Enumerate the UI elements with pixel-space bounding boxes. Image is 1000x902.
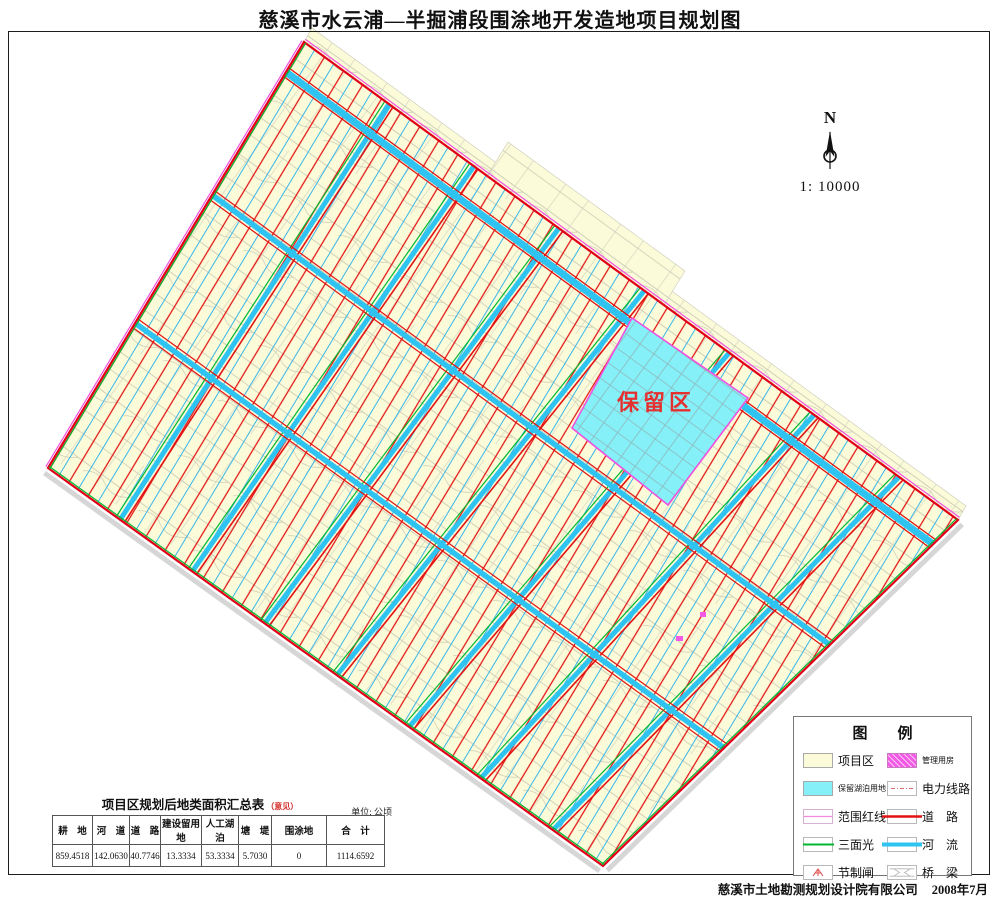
legend-row: 范围红线 道 路 xyxy=(794,802,971,830)
boundary-red-line-icon xyxy=(804,810,832,823)
table-value-row: 859.4518 142.0630 40.7746 13.3334 53.333… xyxy=(53,845,385,867)
area-value: 142.0630 xyxy=(93,845,130,867)
road-icon xyxy=(884,810,920,823)
river-swatch xyxy=(887,837,917,852)
north-arrow-icon xyxy=(813,128,847,172)
area-summary-table: 耕 地 河 道 道 路 建设留用地 人工湖泊 塘 堤 围涂地 合 计 859.4… xyxy=(52,815,385,867)
bridge-swatch xyxy=(887,865,917,880)
control-gate-swatch xyxy=(803,865,833,880)
area-value: 40.7746 xyxy=(130,845,161,867)
legend-row: 项目区 管理用房 xyxy=(794,746,971,774)
col-header: 河 道 xyxy=(93,816,130,845)
col-header: 塘 堤 xyxy=(239,816,272,845)
reserved-lake-swatch xyxy=(803,781,833,796)
legend-item-bridge: 桥 梁 xyxy=(887,864,967,881)
legend-title: 图 例 xyxy=(794,722,971,743)
area-table-title-note: （意见） xyxy=(266,802,298,811)
project-area-swatch xyxy=(803,753,833,768)
legend-item-project-area: 项目区 xyxy=(803,752,887,769)
area-table-title: 项目区规划后地类面积汇总表（意见） xyxy=(60,794,340,813)
power-line-icon xyxy=(888,782,916,795)
legend-row: 节制闸 桥 梁 xyxy=(794,858,971,886)
legend-row: 三面光 河 流 xyxy=(794,830,971,858)
management-housing-swatch xyxy=(887,753,917,768)
col-header: 耕 地 xyxy=(53,816,93,845)
legend-item-road: 道 路 xyxy=(887,808,967,825)
road-swatch xyxy=(887,809,917,824)
lined-channel-icon xyxy=(804,838,832,851)
col-header: 人工湖泊 xyxy=(202,816,239,845)
legend-item-reserved-lake: 保留湖泊用地 xyxy=(803,781,887,796)
col-header: 围涂地 xyxy=(272,816,327,845)
area-value: 1114.6592 xyxy=(327,845,385,867)
legend-rows: 项目区 管理用房 保留湖泊用地 xyxy=(794,746,971,886)
col-header: 建设留用地 xyxy=(161,816,202,845)
lined-channel-swatch xyxy=(803,837,833,852)
boundary-red-line-swatch xyxy=(803,809,833,824)
legend-item-management-housing: 管理用房 xyxy=(887,753,967,768)
bridge-icon xyxy=(888,865,916,880)
area-value: 859.4518 xyxy=(53,845,93,867)
col-header: 合 计 xyxy=(327,816,385,845)
compass: N 1: 10000 xyxy=(796,108,864,196)
control-gate-icon xyxy=(805,866,831,879)
legend-item-power-line: 电力线路 xyxy=(887,780,967,797)
legend-row: 保留湖泊用地 电力线路 xyxy=(794,774,971,802)
power-line-swatch xyxy=(887,781,917,796)
scale-label: 1: 10000 xyxy=(796,179,864,196)
legend-item-river: 河 流 xyxy=(887,836,967,853)
area-value: 0 xyxy=(272,845,327,867)
area-value: 13.3334 xyxy=(161,845,202,867)
col-header: 道 路 xyxy=(130,816,161,845)
river-icon xyxy=(884,838,920,851)
legend-item-lined-channel: 三面光 xyxy=(803,836,887,853)
legend-item-control-gate: 节制闸 xyxy=(803,864,887,881)
planning-map-sheet: 慈溪市水云浦—半掘浦段围涂地开发造地项目规划图 xyxy=(0,0,1000,902)
table-header-row: 耕 地 河 道 道 路 建设留用地 人工湖泊 塘 堤 围涂地 合 计 xyxy=(53,816,385,845)
legend-item-boundary-red-line: 范围红线 xyxy=(803,808,887,825)
area-value: 53.3334 xyxy=(202,845,239,867)
north-label: N xyxy=(796,108,864,128)
area-value: 5.7030 xyxy=(239,845,272,867)
legend-box: 图 例 项目区 管理用房 保留湖泊用地 xyxy=(793,716,972,876)
